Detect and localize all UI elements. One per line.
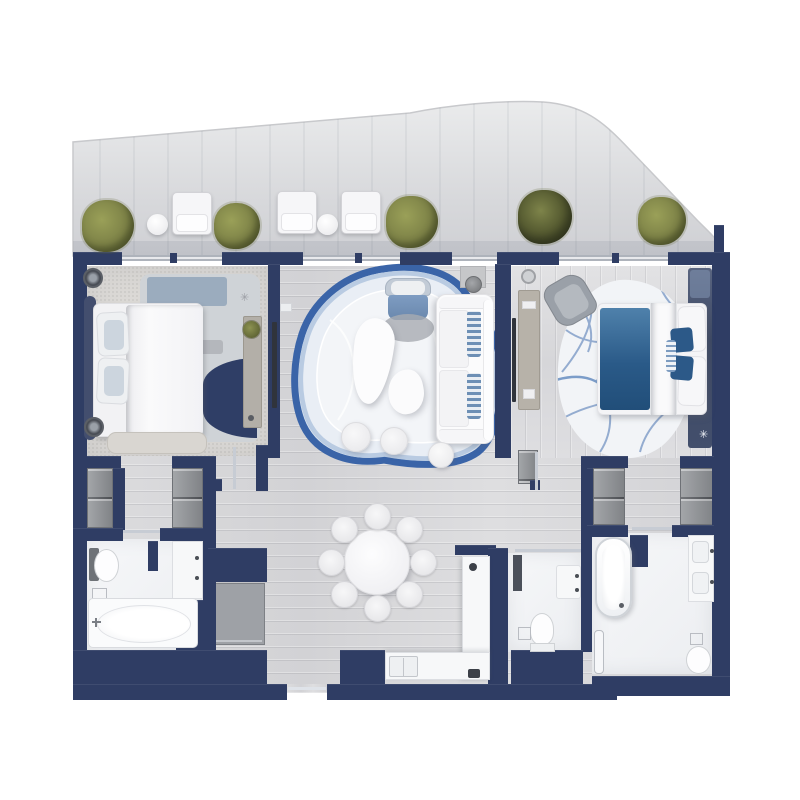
dining-chair <box>364 595 391 622</box>
freestanding-bathtub <box>595 537 632 618</box>
bed1-accent-pillow <box>104 366 124 396</box>
window-mullion <box>612 253 619 263</box>
bed1-foot-bench <box>107 432 207 454</box>
faucet-dot <box>195 556 199 560</box>
floor-plan-canvas: ✳✳ <box>0 0 800 800</box>
wall-closet-frame <box>73 528 123 541</box>
faucet-dot <box>710 549 714 553</box>
kitchen-sink <box>389 656 418 677</box>
wall-switch <box>280 303 292 312</box>
sofa-back <box>483 300 493 440</box>
wall-closet-frame <box>587 468 593 525</box>
wall-closet-frame <box>113 468 125 530</box>
wall-tab <box>148 541 158 571</box>
toilet-cistern-box <box>690 633 703 645</box>
bed1-duvet <box>126 305 203 435</box>
wc-floor-fixture <box>518 627 531 640</box>
door-leaf <box>123 530 160 533</box>
sofa <box>436 294 494 444</box>
door-leaf <box>632 527 672 530</box>
kitchen-faucet <box>469 563 477 571</box>
wall-right-exterior <box>712 252 730 693</box>
vanity-basin <box>692 572 709 594</box>
utility-door-line <box>216 640 262 642</box>
dining-chair <box>331 581 358 608</box>
dresser-plant <box>243 321 260 338</box>
bathtub-drain <box>619 603 624 608</box>
wall-segment <box>222 252 303 265</box>
dining-chair <box>410 549 437 576</box>
wall-closet-frame <box>160 528 203 541</box>
tv-bedroom2 <box>512 318 516 402</box>
ceiling-spotlight <box>84 417 104 437</box>
bed1-accent-pillow <box>104 320 124 350</box>
armchair-cushion <box>551 281 591 321</box>
wall-kitchen-right <box>488 548 508 684</box>
wall-wc-bottom <box>511 650 583 684</box>
window-mullion <box>355 253 362 263</box>
runner-rug-highlight <box>690 270 710 298</box>
wall-tab <box>630 535 648 567</box>
kitchen-appliance <box>468 669 480 678</box>
shower-drain <box>594 630 604 674</box>
wall-bottom-exterior <box>73 684 287 700</box>
dining-chair <box>331 516 358 543</box>
sparkle-decor-icon: ✳ <box>699 430 708 441</box>
faucet-dot <box>710 580 714 584</box>
sofa-seat-cushion <box>439 310 469 368</box>
wall-segment <box>400 252 452 265</box>
dining-chair <box>364 503 391 530</box>
wall-closet-frame <box>87 456 121 468</box>
entry-door-leaf <box>288 687 326 690</box>
sofa-striped-pillow <box>467 311 481 357</box>
faucet-dot <box>195 576 199 580</box>
bathtub-basin <box>602 545 625 610</box>
double-vanity <box>688 535 714 602</box>
wall-band <box>73 650 267 684</box>
wall-bottom-exterior <box>592 676 730 696</box>
toilet-bowl <box>94 549 119 582</box>
bathtub-basin <box>97 605 191 643</box>
bed2-striped-cushion <box>666 340 676 372</box>
door-leaf <box>535 452 538 490</box>
ceiling-spotlight <box>83 268 103 288</box>
wc-wall-panel <box>513 555 522 591</box>
window-mullion <box>170 253 177 263</box>
faucet-dot <box>575 588 579 592</box>
sink-divider <box>403 658 404 676</box>
wall-right-nub <box>714 225 724 252</box>
sofa-side-table <box>428 442 454 468</box>
dining-chair <box>396 516 423 543</box>
dresser-knob <box>248 415 254 421</box>
bed2-duvet <box>600 308 650 410</box>
sparkle-decor-icon: ✳ <box>240 293 249 304</box>
desk-item <box>523 389 535 399</box>
wc-toilet-cistern <box>530 643 555 652</box>
bathtub-faucet <box>95 618 97 627</box>
shelf-planter <box>465 276 482 293</box>
wall-bottom-exterior <box>327 684 617 700</box>
wall-closet-frame <box>587 456 628 468</box>
door-leaf <box>515 549 581 552</box>
wall-block <box>340 650 385 684</box>
dining-chair <box>396 581 423 608</box>
bathtub <box>88 598 198 648</box>
wall-living-bedroom2 <box>495 264 511 458</box>
vanity-basin <box>692 541 709 563</box>
tv-living-side <box>272 322 277 408</box>
toilet-bowl <box>686 646 711 674</box>
wall-door-jamb <box>256 445 268 491</box>
faucet-dot <box>575 574 579 578</box>
bedroom1-rug-patch <box>147 277 227 306</box>
wc-toilet-bowl <box>530 613 554 645</box>
wall-mirror <box>521 269 536 284</box>
wc-basin <box>556 565 581 599</box>
wall-utility-frame <box>208 548 267 582</box>
pouf <box>380 427 408 455</box>
pouf <box>341 422 371 452</box>
wall-closet-frame <box>587 525 628 537</box>
dining-chair <box>318 549 345 576</box>
bathroom1-vanity <box>172 541 203 599</box>
living-armchair-pillow <box>391 281 425 295</box>
wall-closet-frame <box>680 456 714 468</box>
bedroom2-desk <box>518 290 540 410</box>
sofa-seat-cushion <box>439 370 469 427</box>
entry-opening <box>287 693 327 700</box>
desk-item <box>522 301 536 309</box>
door-leaf <box>233 447 236 489</box>
sofa-striped-pillow <box>467 373 481 419</box>
